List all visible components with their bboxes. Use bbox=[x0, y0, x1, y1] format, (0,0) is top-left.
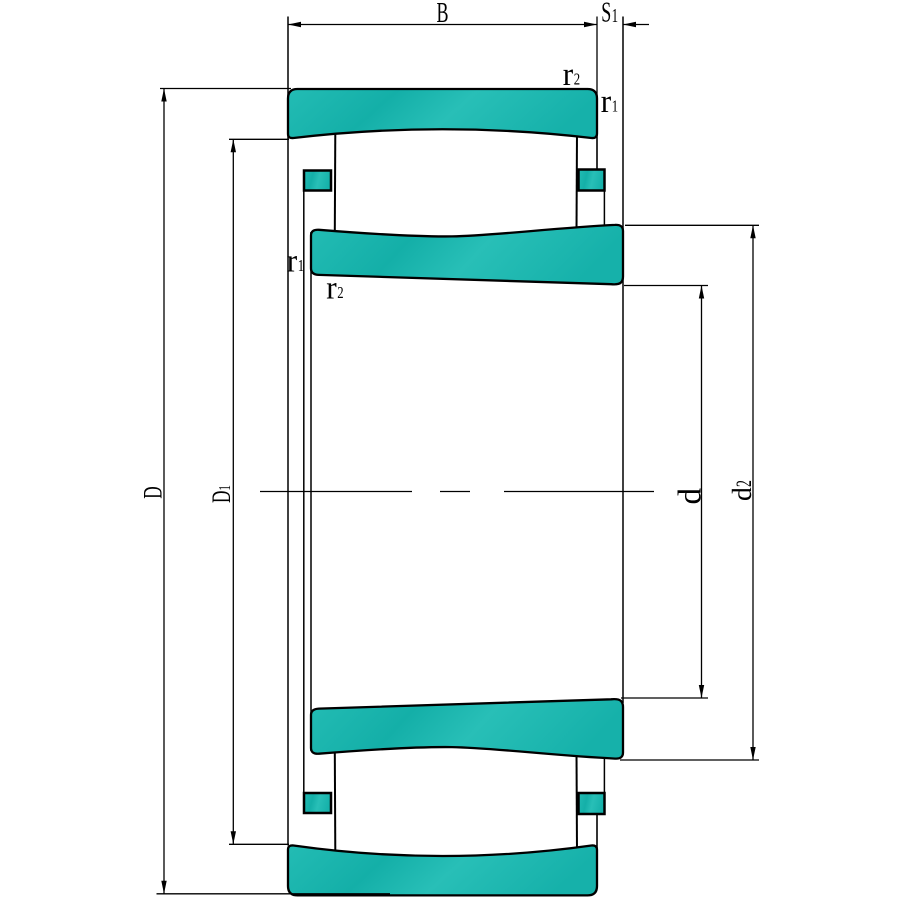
svg-text:2: 2 bbox=[574, 71, 580, 89]
svg-text:r: r bbox=[326, 269, 337, 306]
svg-text:S: S bbox=[601, 0, 611, 29]
svg-text:r: r bbox=[563, 55, 574, 92]
svg-text:1: 1 bbox=[612, 98, 618, 116]
svg-text:1: 1 bbox=[298, 258, 304, 276]
svg-text:2: 2 bbox=[732, 480, 756, 487]
svg-text:B: B bbox=[437, 0, 449, 29]
svg-text:r: r bbox=[287, 242, 298, 279]
svg-text:1: 1 bbox=[612, 4, 619, 27]
svg-text:2: 2 bbox=[337, 285, 343, 303]
svg-text:D: D bbox=[138, 486, 168, 498]
svg-text:d: d bbox=[726, 487, 757, 501]
svg-text:d: d bbox=[673, 488, 709, 505]
svg-text:r: r bbox=[601, 82, 612, 119]
